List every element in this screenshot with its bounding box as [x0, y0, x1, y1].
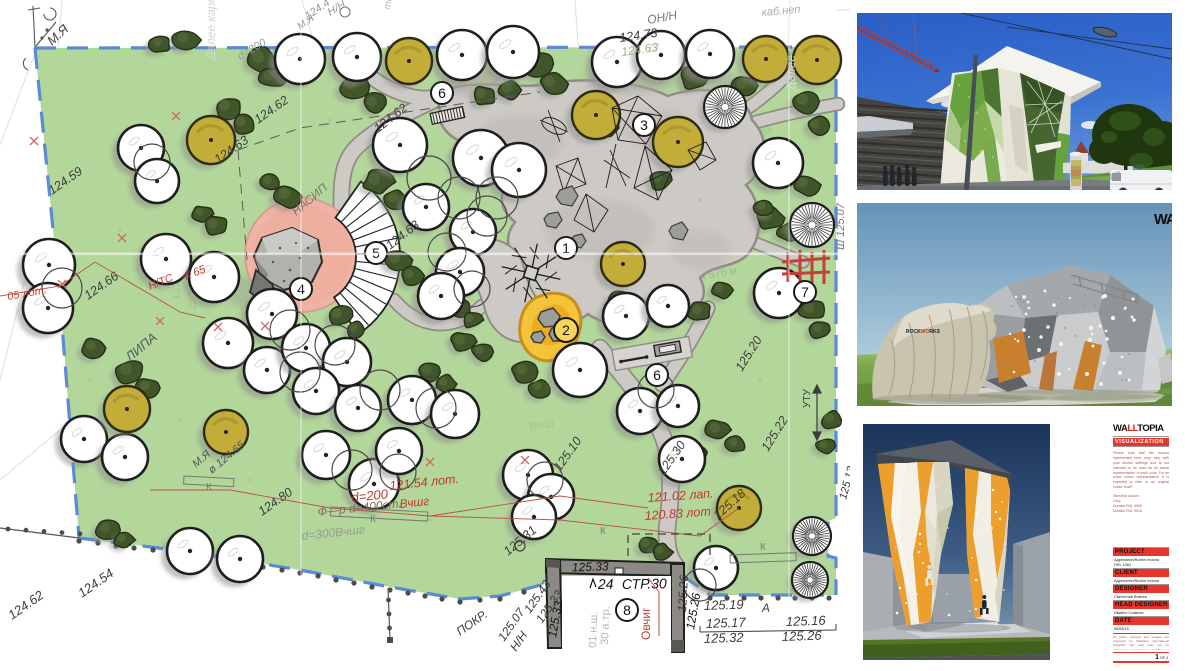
svg-text:01 н.ш.: 01 н.ш. [587, 611, 600, 648]
svg-text:125.26: 125.26 [675, 574, 691, 612]
svg-text:К: К [760, 542, 766, 553]
svg-text:2: 2 [562, 322, 570, 338]
svg-text:Ш 125.07: Ш 125.07 [835, 202, 847, 250]
svg-text:125.19: 125.19 [704, 597, 744, 613]
svg-text:125.16: 125.16 [786, 613, 827, 629]
svg-text:Овчиг: Овчиг [639, 607, 653, 640]
svg-text:30 а.тр.: 30 а.тр. [599, 606, 612, 645]
svg-text:WA: WA [1154, 212, 1172, 228]
svg-text:К: К [370, 514, 376, 525]
svg-text:24: 24 [597, 576, 614, 592]
svg-text:8: 8 [623, 602, 631, 618]
svg-text:К: К [600, 526, 606, 537]
svg-text:УТУ: УТУ [802, 389, 813, 408]
svg-text:3: 3 [640, 117, 648, 133]
svg-text:Далее картер: Далее картер [204, 0, 218, 62]
svg-text:А: А [761, 601, 770, 615]
svg-text:К: К [206, 482, 212, 493]
svg-text:СТР.30: СТР.30 [622, 575, 667, 592]
svg-text:7: 7 [801, 284, 809, 300]
svg-text:ROCKWORKS: ROCKWORKS [906, 329, 941, 335]
svg-text:125.33: 125.33 [572, 559, 609, 574]
svg-text:6: 6 [438, 85, 446, 101]
svg-text:6: 6 [653, 367, 661, 383]
svg-text:Далее: Далее [784, 55, 798, 92]
svg-text:125.17: 125.17 [706, 615, 747, 631]
